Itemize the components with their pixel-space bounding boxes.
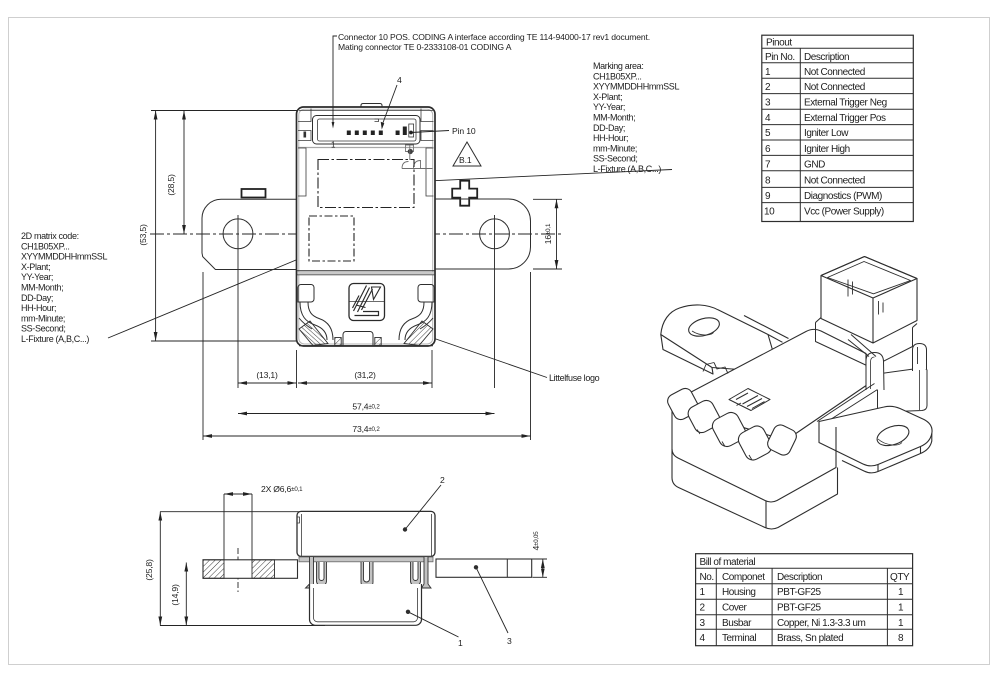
svg-text:DD-Day;: DD-Day;: [593, 123, 625, 133]
svg-text:3: 3: [507, 636, 512, 646]
svg-text:B.1: B.1: [459, 155, 472, 165]
svg-text:2: 2: [765, 82, 771, 93]
svg-text:Pinout: Pinout: [766, 38, 792, 49]
svg-text:Mating connector TE 0-2333108-: Mating connector TE 0-2333108-01 CODING …: [338, 42, 512, 52]
svg-text:PBT-GF25: PBT-GF25: [777, 602, 822, 613]
svg-text:5: 5: [765, 128, 771, 139]
svg-text:Vcc (Power Supply): Vcc (Power Supply): [804, 206, 884, 217]
svg-text:1: 1: [700, 587, 706, 598]
svg-text:External Trigger Pos: External Trigger Pos: [804, 113, 886, 124]
svg-text:Bill of material: Bill of material: [700, 557, 756, 568]
svg-text:(13,1): (13,1): [256, 370, 278, 380]
svg-text:Diagnostics (PWM): Diagnostics (PWM): [804, 191, 882, 202]
svg-text:57,4±0,2: 57,4±0,2: [352, 402, 380, 412]
svg-text:7: 7: [765, 159, 771, 170]
svg-text:MM-Month;: MM-Month;: [593, 113, 635, 123]
svg-text:8: 8: [765, 175, 771, 186]
svg-text:2: 2: [700, 602, 706, 613]
svg-text:L-Fixture (A,B,C...): L-Fixture (A,B,C...): [21, 334, 89, 344]
svg-text:(25,8): (25,8): [144, 559, 154, 581]
svg-text:No.: No.: [700, 572, 714, 583]
svg-text:6: 6: [765, 144, 771, 155]
svg-text:1: 1: [331, 141, 335, 150]
svg-text:Description: Description: [777, 572, 822, 583]
svg-text:MM-Month;: MM-Month;: [21, 283, 63, 293]
svg-text:Not Connected: Not Connected: [804, 175, 865, 186]
svg-text:X-Plant;: X-Plant;: [21, 262, 50, 272]
svg-text:Igniter High: Igniter High: [804, 144, 850, 155]
svg-text:16±0,1: 16±0,1: [543, 223, 553, 244]
svg-text:HH-Hour;: HH-Hour;: [593, 133, 628, 143]
svg-text:GND: GND: [804, 159, 825, 170]
svg-text:Pin No.: Pin No.: [765, 52, 795, 63]
svg-text:3: 3: [765, 98, 771, 109]
svg-text:QTY: QTY: [890, 572, 910, 583]
svg-text:Terminal: Terminal: [722, 633, 756, 644]
svg-text:X-Plant;: X-Plant;: [593, 92, 622, 102]
svg-text:PBT-GF25: PBT-GF25: [777, 587, 822, 598]
svg-text:Connector 10 POS. CODING A int: Connector 10 POS. CODING A interface acc…: [338, 32, 650, 42]
svg-text:CH1B05XP...: CH1B05XP...: [593, 71, 642, 81]
svg-text:XYYMMDDHHmmSSL: XYYMMDDHHmmSSL: [21, 252, 107, 262]
svg-text:Pin 10: Pin 10: [452, 126, 476, 136]
svg-text:1: 1: [898, 602, 904, 613]
svg-text:10: 10: [764, 206, 775, 217]
svg-text:mm-Minute;: mm-Minute;: [21, 313, 65, 323]
svg-text:9: 9: [765, 191, 771, 202]
svg-text:1: 1: [458, 638, 463, 648]
svg-text:3: 3: [700, 618, 706, 629]
svg-text:Littelfuse logo: Littelfuse logo: [549, 373, 600, 383]
svg-text:(28,5): (28,5): [166, 174, 176, 196]
svg-text:Description: Description: [804, 52, 849, 63]
svg-text:1: 1: [898, 587, 904, 598]
svg-text:DD-Day;: DD-Day;: [21, 293, 53, 303]
svg-text:HH-Hour;: HH-Hour;: [21, 303, 56, 313]
svg-text:2: 2: [440, 475, 445, 485]
svg-text:Cover: Cover: [722, 602, 748, 613]
svg-text:73,4±0,2: 73,4±0,2: [352, 424, 380, 434]
svg-text:XYYMMDDHHmmSSL: XYYMMDDHHmmSSL: [593, 82, 679, 92]
svg-text:1: 1: [765, 67, 771, 78]
svg-text:SS-Second;: SS-Second;: [21, 324, 66, 334]
svg-text:YY-Year;: YY-Year;: [21, 272, 53, 282]
svg-text:4: 4: [397, 75, 402, 85]
svg-text:(31,2): (31,2): [354, 370, 376, 380]
svg-text:4: 4: [765, 113, 771, 124]
svg-text:2X Ø6,6±0,1: 2X Ø6,6±0,1: [261, 484, 303, 494]
svg-text:1: 1: [898, 618, 904, 629]
svg-text:Marking area:: Marking area:: [593, 61, 643, 71]
svg-text:Housing: Housing: [722, 587, 756, 598]
svg-text:Brass, Sn plated: Brass, Sn plated: [777, 633, 843, 644]
svg-text:(53,5): (53,5): [138, 224, 148, 246]
svg-text:8: 8: [898, 633, 904, 644]
svg-text:CH1B05XP...: CH1B05XP...: [21, 241, 70, 251]
svg-text:Not Connected: Not Connected: [804, 82, 865, 93]
svg-text:Not Connected: Not Connected: [804, 67, 865, 78]
svg-text:YY-Year;: YY-Year;: [593, 102, 625, 112]
svg-text:Componet: Componet: [722, 572, 765, 583]
svg-text:Busbar: Busbar: [722, 618, 752, 629]
svg-text:Igniter Low: Igniter Low: [804, 128, 849, 139]
svg-text:(14,9): (14,9): [170, 584, 180, 606]
svg-text:mm-Minute;: mm-Minute;: [593, 143, 637, 153]
svg-text:SS-Second;: SS-Second;: [593, 154, 638, 164]
svg-text:4±0,05: 4±0,05: [531, 531, 541, 551]
svg-text:4: 4: [700, 633, 706, 644]
svg-text:2D matrix code:: 2D matrix code:: [21, 231, 79, 241]
svg-text:External Trigger Neg: External Trigger Neg: [804, 98, 887, 109]
svg-text:Copper, Ni 1.3-3.3 um: Copper, Ni 1.3-3.3 um: [777, 618, 865, 629]
